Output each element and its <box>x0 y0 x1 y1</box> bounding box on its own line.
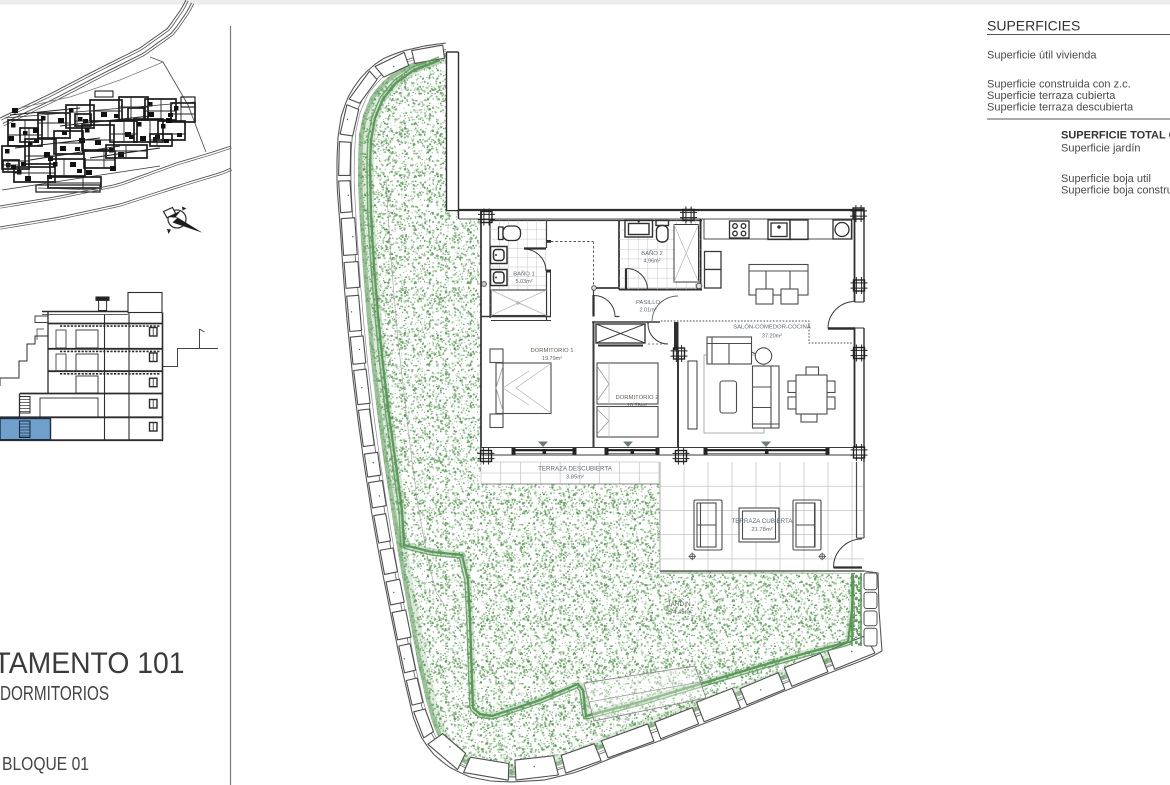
svg-text:Superficie construida con z.c.: Superficie construida con z.c. <box>987 79 1131 91</box>
svg-text:Superficie boja construida: Superficie boja construida <box>1061 185 1170 197</box>
svg-text:5.03m²: 5.03m² <box>515 279 532 285</box>
svg-text:DORMITORIO 1: DORMITORIO 1 <box>530 348 573 354</box>
svg-text:3.85m²: 3.85m² <box>566 475 584 481</box>
svg-text:SUPERFICIES: SUPERFICIES <box>987 18 1080 34</box>
svg-text:Superficie terraza cubierta: Superficie terraza cubierta <box>987 90 1116 102</box>
svg-text:BLOQUE 01: BLOQUE 01 <box>2 754 89 774</box>
svg-text:Superficie jardín: Superficie jardín <box>1061 143 1141 155</box>
svg-text:TERRAZA DESCUBIERTA: TERRAZA DESCUBIERTA <box>538 466 613 473</box>
svg-text:BAÑO 1: BAÑO 1 <box>513 271 535 278</box>
svg-text:JARDIN: JARDIN <box>667 601 691 608</box>
svg-text:4.96m²: 4.96m² <box>643 259 660 265</box>
svg-text:174.45m²: 174.45m² <box>666 610 691 616</box>
svg-text:21.78m²: 21.78m² <box>751 527 772 533</box>
svg-text:PASILLO: PASILLO <box>636 300 661 306</box>
svg-text:19.79m²: 19.79m² <box>542 356 562 362</box>
svg-text:TERRAZA CUBIERTA: TERRAZA CUBIERTA <box>732 518 794 525</box>
svg-text:Superficie terraza descubierta: Superficie terraza descubierta <box>987 102 1134 114</box>
svg-text:TAMENTO 101: TAMENTO 101 <box>0 647 185 680</box>
svg-text:SUPERFICIE TOTAL CONSTRUIDA: SUPERFICIE TOTAL CONSTRUIDA <box>1061 130 1170 142</box>
svg-text:SALÓN-COMEDOR-COCINA: SALÓN-COMEDOR-COCINA <box>733 324 811 331</box>
svg-text:DORMITORIOS: DORMITORIOS <box>0 683 109 705</box>
svg-text:DORMITORIO 2: DORMITORIO 2 <box>615 395 658 401</box>
svg-text:Superficie útil vivienda: Superficie útil vivienda <box>987 50 1097 62</box>
svg-text:Superficie boja util: Superficie boja util <box>1061 173 1151 185</box>
svg-text:BAÑO 2: BAÑO 2 <box>641 250 663 257</box>
svg-text:37.20m²: 37.20m² <box>762 334 782 340</box>
